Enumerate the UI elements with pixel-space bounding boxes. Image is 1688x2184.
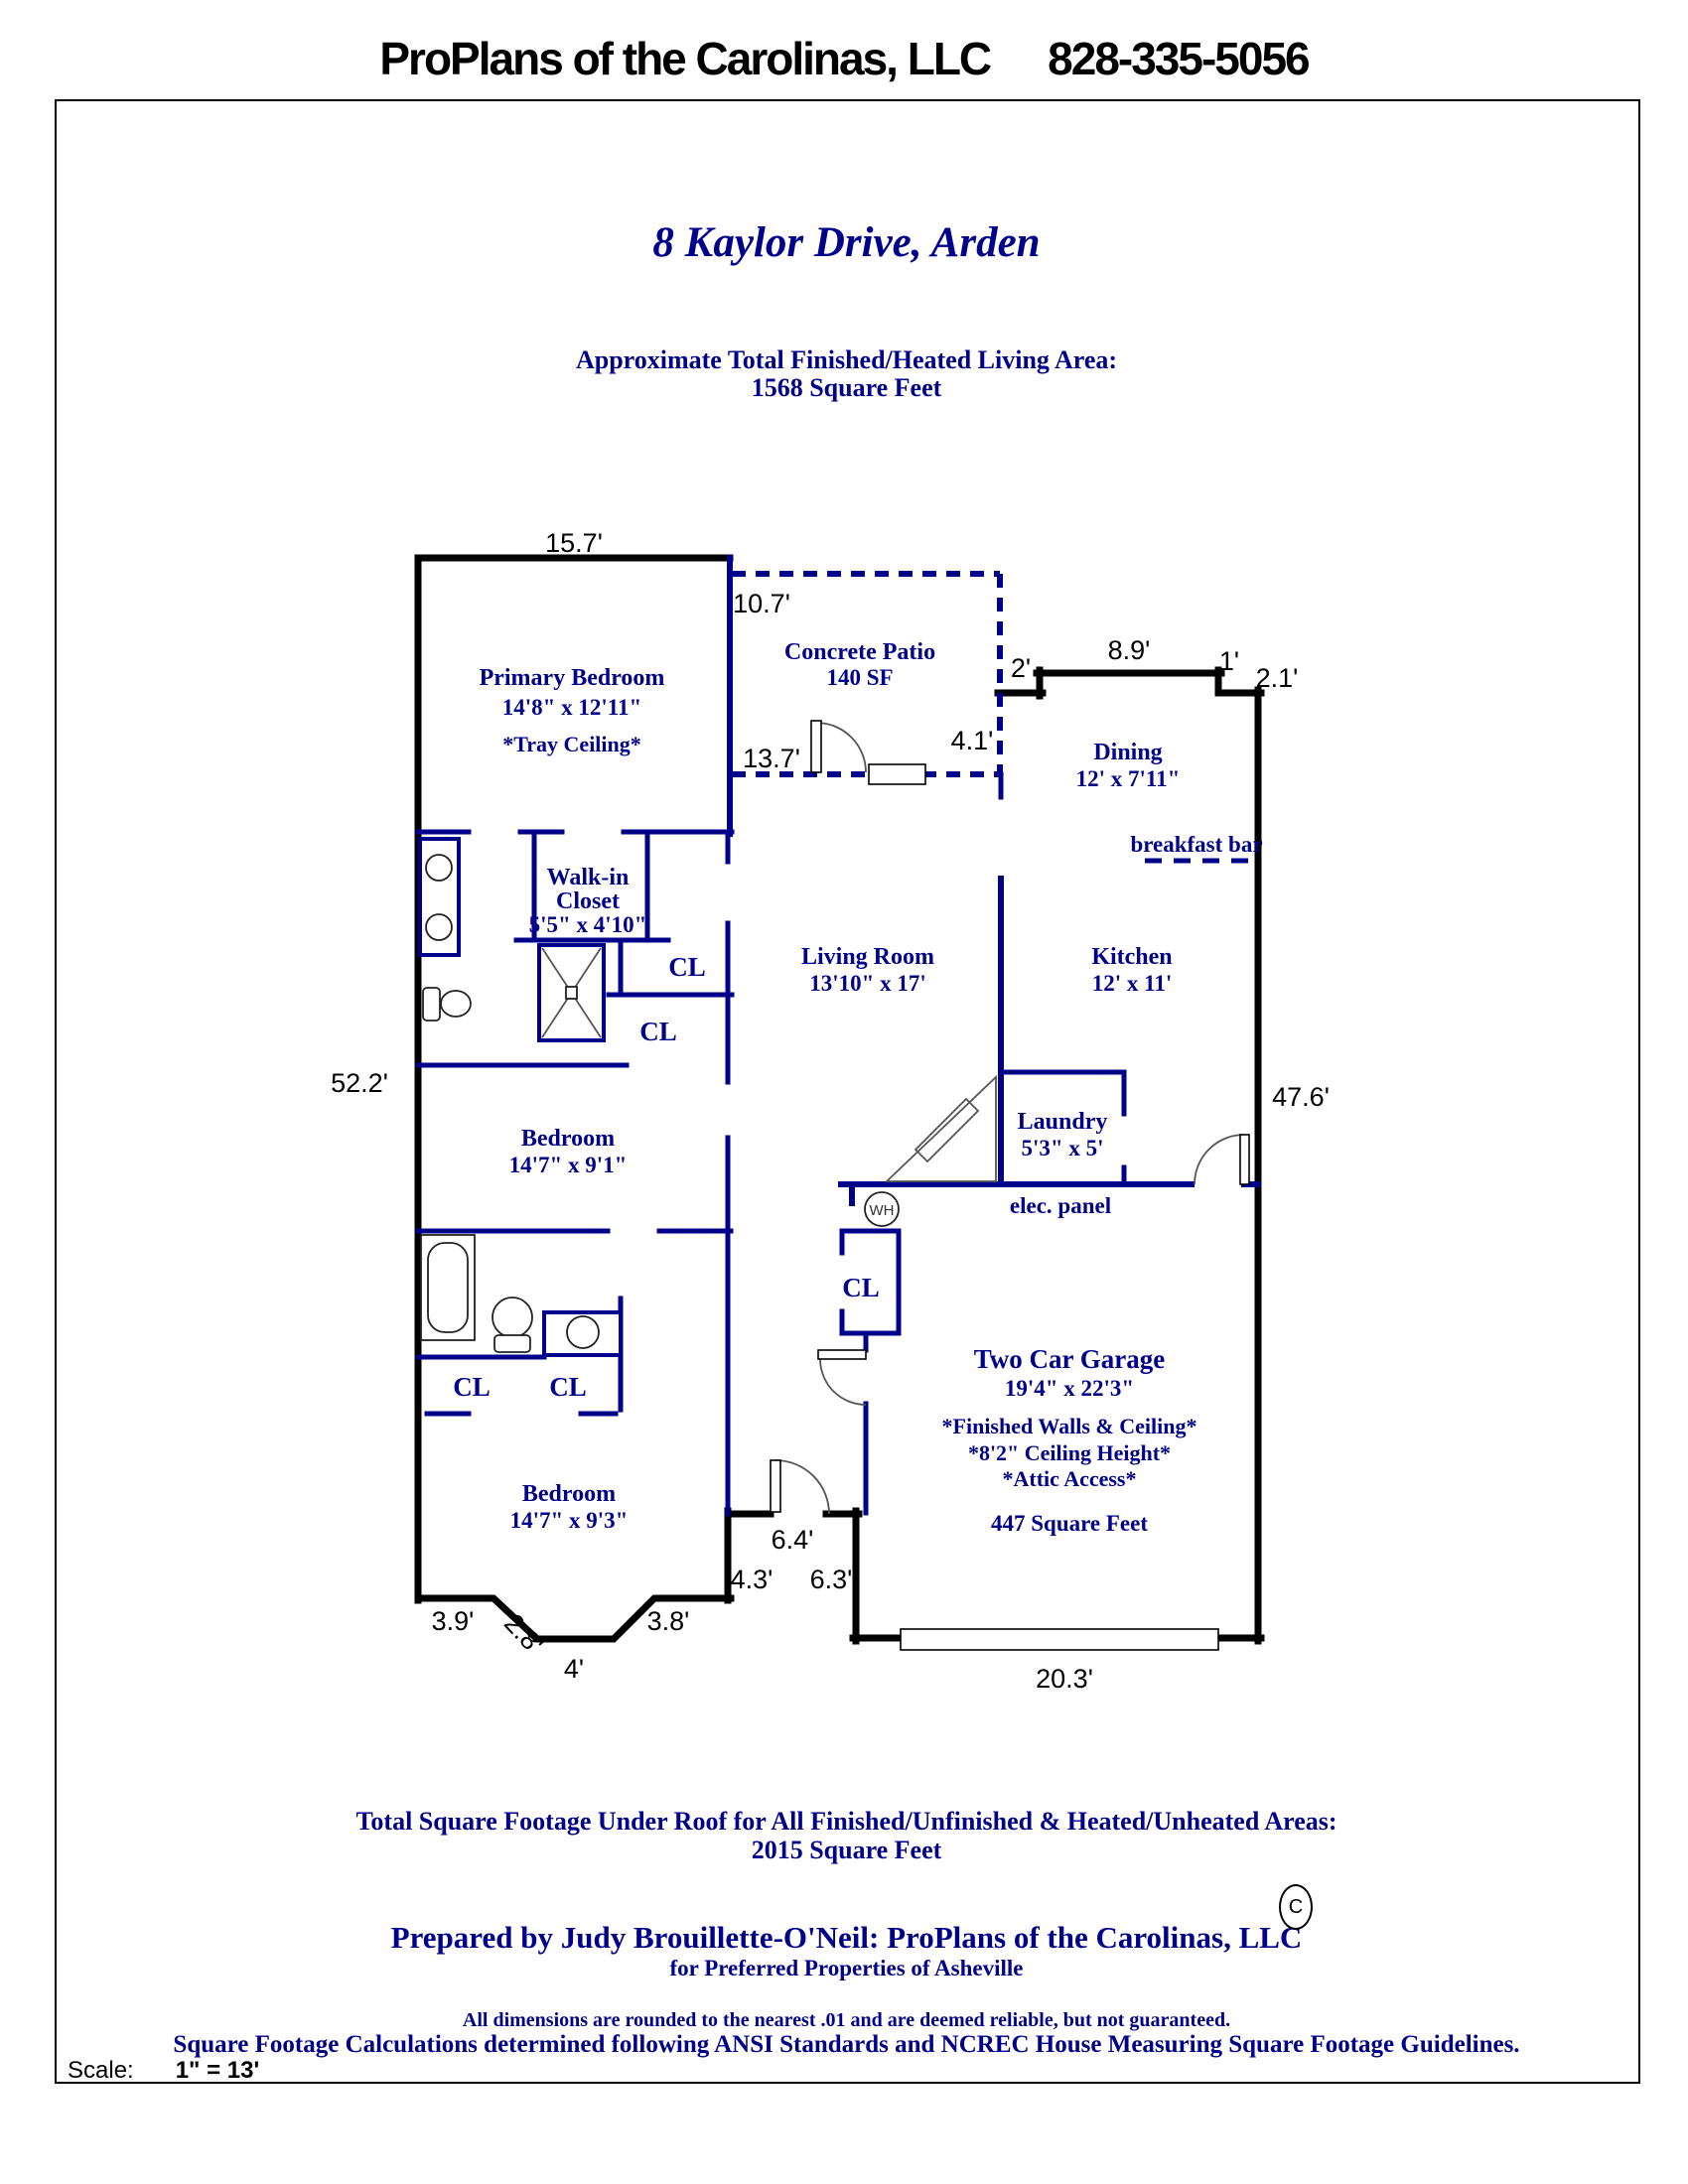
breakfast-bar-label: breakfast bar <box>1130 832 1262 857</box>
dim-dining-step-right: 1' <box>1219 646 1239 676</box>
dim-right-side: 47.6' <box>1272 1082 1330 1112</box>
dim-bay-left: 3.9' <box>432 1606 475 1636</box>
toilet-tank-icon <box>423 988 440 1021</box>
primary-bedroom-note: *Tray Ceiling* <box>502 732 641 756</box>
walkin-closet-label2: Closet <box>556 888 620 914</box>
sink-icon <box>426 855 452 881</box>
toilet-icon <box>492 1297 532 1337</box>
laundry-dims: 5'3" x 5' <box>1021 1136 1103 1160</box>
garage-dims: 19'4" x 22'3" <box>1005 1376 1134 1401</box>
dim-primary-top: 15.7' <box>545 528 603 558</box>
patio-door-leaf <box>811 721 821 772</box>
scale-line: Scale:1" = 13' <box>68 2057 259 2085</box>
total-sqft-heading: Total Square Footage Under Roof for All … <box>55 1807 1638 1837</box>
water-heater-label: WH <box>870 1202 895 1219</box>
dining-label: Dining <box>1093 740 1162 765</box>
dimension-labels: 15.7' 10.7' 13.7' 4.1' 2' 8.9' 1' 2.1' 5… <box>331 528 1330 1694</box>
dining-dims: 12' x 7'11" <box>1076 766 1181 791</box>
bedroom-front-label: Bedroom <box>522 1481 616 1507</box>
hall-garage-door-arc <box>820 1359 866 1405</box>
garage-area: 447 Square Feet <box>991 1511 1148 1536</box>
living-room-label: Living Room <box>801 944 934 970</box>
dim-patio-top: 10.7' <box>733 589 790 618</box>
bedroom-mid-dims: 14'7" x 9'1" <box>509 1153 628 1177</box>
front-door-leaf <box>771 1460 780 1512</box>
fixtures <box>420 839 996 1355</box>
prepared-by-line: Prepared by Judy Brouillette-O'Neil: Pro… <box>55 1920 1638 1956</box>
dim-dining-right: 2.1' <box>1256 663 1299 693</box>
garage-label: Two Car Garage <box>974 1344 1165 1374</box>
walkin-closet-dims: 5'5" x 4'10" <box>529 912 647 937</box>
closet-label: CL <box>639 1017 677 1046</box>
copyright-icon: C <box>1279 1884 1313 1930</box>
patio-door-arc <box>816 723 866 772</box>
dim-patio-right: 4.1' <box>951 726 994 755</box>
hall-garage-door-leaf <box>818 1350 866 1359</box>
dim-porch-right: 6.3' <box>810 1565 853 1594</box>
closet-label: CL <box>549 1372 587 1402</box>
kitchen-garage-door-leaf <box>1240 1135 1249 1184</box>
patio-label: Concrete Patio <box>784 639 935 665</box>
garage-note1: *Finished Walls & Ceiling* <box>942 1414 1197 1438</box>
bathtub-inner <box>428 1243 468 1332</box>
laundry-label: Laundry <box>1018 1109 1108 1135</box>
dim-left-side: 52.2' <box>331 1068 388 1098</box>
sink-icon <box>426 914 452 940</box>
patio-slider-icon <box>869 764 925 784</box>
corner-unit-door <box>915 1099 978 1161</box>
living-room-dims: 13'10" x 17' <box>809 971 926 996</box>
closet-label: CL <box>842 1273 880 1302</box>
sink-icon <box>567 1316 599 1348</box>
toilet-tank-icon <box>494 1335 530 1352</box>
kitchen-label: Kitchen <box>1091 944 1172 970</box>
dim-patio-bottom: 13.7' <box>743 744 800 773</box>
bedroom-front-dims: 14'7" x 9'3" <box>510 1508 629 1533</box>
kitchen-dims: 12' x 11' <box>1092 971 1173 996</box>
closet-label: CL <box>453 1372 491 1402</box>
bedroom-mid-label: Bedroom <box>521 1126 615 1152</box>
dim-porch-top: 6.4' <box>772 1525 814 1555</box>
garage-note2: *8'2" Ceiling Height* <box>968 1440 1171 1465</box>
total-sqft-value: 2015 Square Feet <box>55 1836 1638 1865</box>
dim-dining-step-left: 2' <box>1011 653 1031 683</box>
closet-label: CL <box>668 952 706 982</box>
shower-drain-icon <box>566 987 577 999</box>
dim-garage-bottom: 20.3' <box>1036 1664 1093 1694</box>
disclaimer-line1: All dimensions are rounded to the neares… <box>55 2009 1638 2032</box>
front-door-arc <box>775 1460 829 1514</box>
toilet-icon <box>441 991 471 1017</box>
dim-bay-right: 3.8' <box>647 1606 690 1636</box>
scale-value: 1" = 13' <box>176 2057 259 2084</box>
corner-unit-icon <box>887 1077 996 1181</box>
primary-bedroom-label: Primary Bedroom <box>480 665 665 691</box>
walkin-closet-label1: Walk-in <box>547 865 630 890</box>
copyright-letter: C <box>1289 1896 1303 1919</box>
patio-area: 140 SF <box>826 665 893 690</box>
dim-porch-left: 4.3' <box>731 1565 774 1594</box>
disclaimer-line2: Square Footage Calculations determined f… <box>55 2031 1638 2059</box>
dim-bay-bottom: 4' <box>564 1654 584 1684</box>
kitchen-garage-door-arc <box>1195 1135 1244 1184</box>
primary-bedroom-dims: 14'8" x 12'11" <box>502 695 642 720</box>
dim-bay-angle: 2.8' <box>498 1608 549 1660</box>
elec-panel-label: elec. panel <box>1010 1193 1111 1218</box>
garage-note3: *Attic Access* <box>1002 1466 1136 1491</box>
for-line: for Preferred Properties of Asheville <box>55 1956 1638 1981</box>
dim-dining-top: 8.9' <box>1108 635 1151 665</box>
scale-label: Scale: <box>68 2057 134 2084</box>
garage-door-icon <box>901 1629 1218 1650</box>
